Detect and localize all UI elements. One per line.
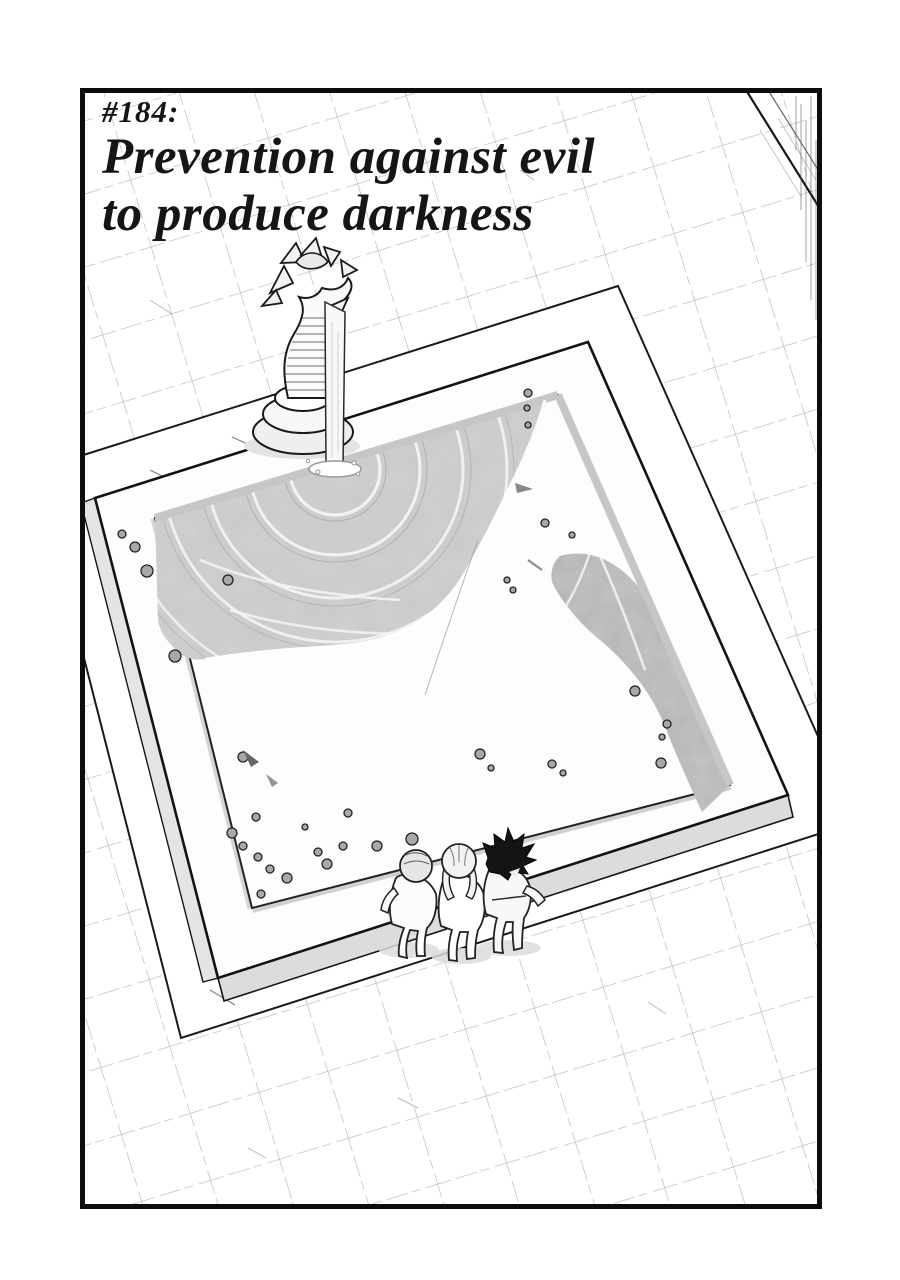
hair-left xyxy=(400,850,432,882)
shadow-left xyxy=(379,942,439,958)
chapter-title: #184: Prevention against evil to produce… xyxy=(102,95,595,243)
chapter-title-line-2: to produce darkness xyxy=(102,186,595,243)
shadow-right xyxy=(477,940,541,956)
manga-page: #184: Prevention against evil to produce… xyxy=(0,0,900,1280)
chapter-number: #184: xyxy=(102,95,595,129)
chapter-title-line-1: Prevention against evil xyxy=(102,129,595,186)
